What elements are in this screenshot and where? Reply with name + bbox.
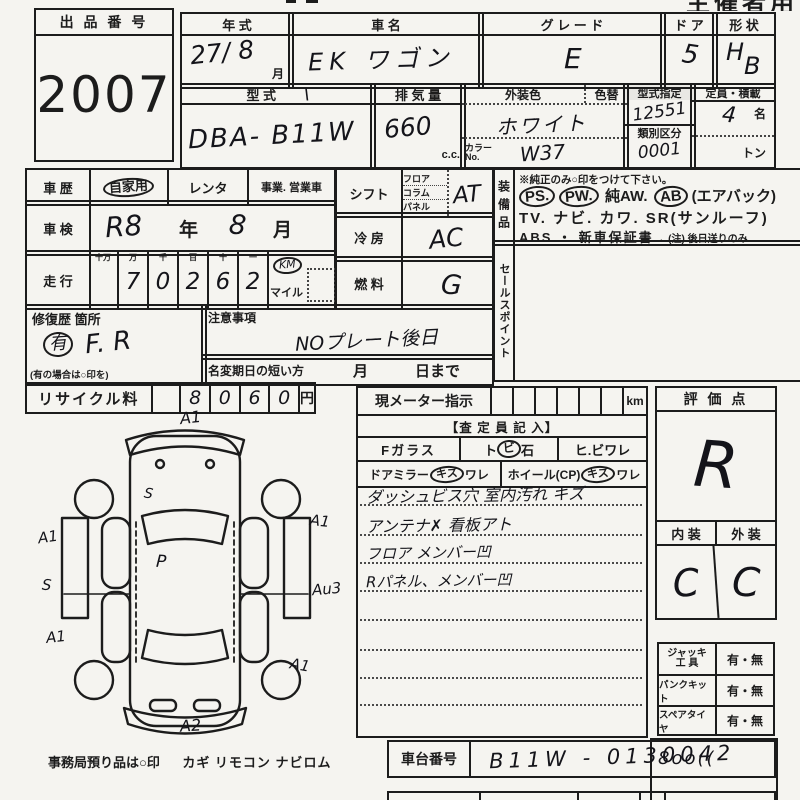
- model-code-label-text: 型 式: [246, 85, 276, 104]
- color-no-row: カラー No. W37: [462, 137, 627, 169]
- capacity-label: 定員・積載: [692, 85, 774, 102]
- color-change-label: 色替: [586, 85, 627, 103]
- inspection-box: 車 検 R8 年 8 月: [25, 200, 336, 256]
- meter-unit: km: [622, 388, 646, 414]
- year-box: 年 式 27/ 8 月: [180, 12, 294, 89]
- evaluation-score: R: [653, 408, 778, 524]
- repair-history-label: 修復歴 箇所: [32, 309, 101, 328]
- type-designation-box: 型式指定 12551 類別区分 0001: [623, 83, 696, 169]
- meter-label: 現メーター指示: [358, 388, 490, 414]
- assessor-note-1: ダッシュビス穴 室内汚れ キズ: [366, 480, 585, 508]
- mileage-extra-cell: [307, 268, 336, 302]
- fuel-label: 燃 料: [337, 258, 403, 308]
- equipment-label: 装備品: [496, 180, 513, 234]
- inspection-label: 車 検: [27, 202, 91, 254]
- shape-box: 形 状 H B: [712, 12, 776, 89]
- jack-label-line2: 工 具: [676, 659, 699, 669]
- assessor-title: 【査 定 員 記 入】: [358, 416, 646, 438]
- meter-cell: [578, 388, 600, 414]
- equipment-label-cell: 装備品: [495, 170, 515, 244]
- meter-cell: [490, 388, 512, 414]
- aircon-box: 冷 房 AC: [335, 212, 494, 262]
- office-note-items: カギ リモコン ナビロム: [182, 755, 331, 770]
- note-line: [360, 677, 642, 679]
- clipped-table-divider: [479, 793, 481, 800]
- digit-header: 百: [179, 252, 207, 263]
- accessory-row-jack: ジャッキ 工 具 有・無: [659, 644, 773, 676]
- puncture-kit-有無: 有・無: [717, 676, 773, 705]
- exterior-color-box: 外装色 色替 ホワイト カラー No. W37: [460, 83, 629, 169]
- equipment-aw: 純AW.: [605, 188, 648, 205]
- repair-history-value: F. R: [84, 326, 133, 361]
- mileage-unit-mile: マイル: [270, 284, 303, 300]
- mileage-digit-cells: 十万 万7 千0 百2 十6 一2: [89, 252, 269, 308]
- interior-grade: C: [654, 544, 719, 622]
- inspection-year-suffix: 年: [179, 215, 198, 242]
- clipped-table-divider: [639, 793, 641, 800]
- color-no-value: W37: [519, 139, 566, 166]
- stone-chip-circled: ビ: [496, 439, 521, 458]
- clipped-table-divider: [577, 793, 579, 800]
- model-code-label: 型 式 \: [182, 85, 374, 105]
- history-label: 車 歴: [27, 170, 91, 204]
- name-change-label: 名変期日の短い方: [208, 362, 304, 379]
- exterior-label: 外 装: [717, 522, 775, 544]
- office-note: 事務局預り品は○印 カギ リモコン ナビロム: [48, 752, 332, 772]
- note-line: [360, 649, 642, 651]
- mileage-digit: 0: [149, 263, 177, 301]
- car-outline-drawing: [52, 412, 348, 750]
- mileage-digit: 6: [209, 263, 237, 301]
- displacement-label: 排 気 量: [372, 85, 464, 105]
- diagram-mark-roof: P: [155, 552, 166, 573]
- fuel-box: 燃 料 G: [335, 256, 494, 310]
- car-name-box: 車 名 EK ワゴン: [288, 12, 484, 89]
- auction-number-value: 2007: [36, 36, 172, 154]
- grade-label: グ レ ー ド: [480, 14, 664, 36]
- interior-exterior-header: 内 装 外 装: [657, 520, 775, 546]
- auction-number-label: 出 品 番 号: [36, 10, 172, 36]
- diagram-mark-front: A1: [179, 407, 202, 428]
- exterior-color-header: 外装色 色替: [462, 85, 627, 105]
- door-label: ド ア: [662, 14, 716, 36]
- shape-label: 形 状: [714, 14, 774, 36]
- history-option-private: 自家用: [91, 170, 169, 204]
- corner-header: 主催者用: [686, 0, 800, 11]
- jack-有無: 有・無: [717, 644, 773, 674]
- interior-exterior-grades: C C: [657, 546, 775, 620]
- chassis-number-value: B11W - 0130042: [489, 741, 736, 774]
- digit-header: 十万: [89, 252, 117, 263]
- color-no-label2: No.: [465, 152, 480, 162]
- auction-number-box: 出 品 番 号 2007: [34, 8, 174, 162]
- capacity-divider: [692, 135, 774, 137]
- year-label: 年 式: [182, 14, 292, 36]
- repair-history-note: (有の場合は○印を): [30, 367, 109, 381]
- mileage-cell: 十万: [89, 252, 119, 308]
- diagram-mark-left-mid: S: [41, 576, 52, 595]
- model-code-box: 型 式 \ DBA- B11W: [180, 83, 376, 169]
- shift-options: フロア コラム パネル: [403, 172, 447, 213]
- puncture-kit-label: パンクキット: [659, 676, 717, 705]
- aircon-label: 冷 房: [337, 214, 403, 260]
- repair-history-mark: 有: [42, 331, 74, 358]
- stone-chip-cell: ト ビ 石: [461, 438, 559, 460]
- clipped-text-fragment: [306, 0, 318, 3]
- spare-tire-label: スペアタイヤ: [659, 707, 717, 734]
- inspection-month-value: 8: [228, 209, 248, 241]
- chassis-number-label: 車台番号: [389, 742, 471, 776]
- jack-tools-label: ジャッキ 工 具: [659, 644, 717, 674]
- auction-sheet: 主催者用 出 品 番 号 2007 年 式 27/ 8 月 車 名 EK ワゴン…: [0, 0, 800, 800]
- mileage-unit-km: KM: [272, 256, 302, 275]
- recycle-digit: 6: [241, 384, 271, 412]
- name-change-day: 日まで: [415, 360, 460, 381]
- interior-label: 内 装: [657, 522, 717, 544]
- meter-cell: [512, 388, 534, 414]
- evaluation-box: 評 価 点 R 内 装 外 装 C C: [655, 386, 777, 620]
- shift-value: AT: [452, 181, 482, 209]
- mileage-cell: 一2: [239, 252, 269, 308]
- shift-label: シフト: [337, 170, 403, 216]
- diagram-mark-right-front: A1: [309, 511, 331, 531]
- caution-value: NOプレート後日: [294, 322, 438, 356]
- accessories-box: ジャッキ 工 具 有・無 パンクキット 有・無 スペアタイヤ 有・無: [657, 642, 775, 736]
- equipment-box: 装備品 ※純正のみ○印をつけて下さい。 PS. PW. 純AW. AB (エアバ…: [493, 168, 800, 246]
- shape-value-b: B: [744, 52, 760, 80]
- model-code-tick: \: [304, 85, 309, 103]
- crack-label: ヒ.ビワレ: [559, 438, 646, 460]
- shift-options-border: [447, 170, 449, 216]
- car-damage-diagram: A1 S A1 S A1 P A1 Au3 A1 A2: [52, 412, 348, 750]
- displacement-unit: c.c.: [442, 149, 460, 161]
- load-unit: トン: [742, 144, 766, 161]
- displacement-value: 660: [383, 111, 433, 144]
- mileage-digit: 2: [179, 263, 207, 301]
- clipped-bottom-table: [387, 791, 776, 800]
- digit-header: 千: [149, 252, 177, 263]
- caution-box: 注意事項 NOプレート後日: [201, 304, 494, 360]
- history-option-business: 事業. 営業車: [249, 170, 334, 204]
- recycle-cell-blank: [153, 384, 182, 412]
- digit-header: 万: [119, 252, 147, 263]
- repair-history-box: 修復歴 箇所 有 F. R (有の場合は○印を): [25, 304, 207, 386]
- history-option-rental: レンタ: [169, 170, 249, 204]
- note-line: [360, 704, 642, 706]
- diagram-mark-rear: A2: [179, 715, 201, 735]
- meter-cell: [556, 388, 578, 414]
- assessor-note-4: Rパネル、メンバー凹: [366, 569, 512, 593]
- mileage-cell: 百2: [179, 252, 209, 308]
- capacity-value: 4: [721, 102, 738, 128]
- fglass-label: Fガラス: [358, 438, 461, 460]
- mileage-cell: 千0: [149, 252, 179, 308]
- sales-point-label-cell: セールスポイント: [495, 242, 515, 380]
- clipped-table-divider: [664, 793, 666, 800]
- accessory-row-puncture-kit: パンクキット 有・無: [659, 676, 773, 707]
- class-division-value: 0001: [624, 136, 695, 165]
- exterior-color-value: ホワイト: [495, 107, 588, 141]
- recycle-fee-box: リサイクル料 8 0 6 0 円: [25, 382, 316, 414]
- recycle-digit: 0: [211, 384, 241, 412]
- diagram-mark-right-rear: A1: [289, 654, 312, 675]
- caution-label: 注意事項: [208, 309, 256, 326]
- assessor-note-2: アンテナ✗ 看板アト: [366, 511, 512, 538]
- mileage-box: 走 行 十万 万7 千0 百2 十6 一2 KM マイル: [25, 250, 336, 310]
- fuel-value: G: [440, 269, 463, 301]
- recycle-unit: 円: [300, 384, 314, 412]
- mileage-cell: 万7: [119, 252, 149, 308]
- chassis-number-box: 車台番号 B11W - 0130042: [387, 740, 776, 778]
- accessory-row-spare-tire: スペアタイヤ 有・無: [659, 707, 773, 734]
- shift-option-floor: フロア: [403, 172, 447, 186]
- shift-box: シフト フロア コラム パネル AT: [335, 168, 494, 218]
- capacity-box: 定員・積載 4 名 トン: [690, 83, 776, 169]
- equipment-line1: PS. PW. 純AW. AB (エアバック): [519, 185, 776, 207]
- year-value: 27/ 8: [189, 35, 256, 71]
- equipment-airbag-suffix: (エアバック): [692, 188, 776, 205]
- grade-value: E: [564, 42, 582, 75]
- shape-value-h: H: [726, 38, 744, 66]
- inspection-month-suffix: 月: [273, 215, 292, 242]
- equipment-line2: TV. ナビ. カワ. SR(サンルーフ): [519, 207, 769, 228]
- capacity-unit: 名: [754, 105, 766, 122]
- year-month-suffix: 月: [272, 65, 284, 82]
- inspection-era-value: R8: [104, 209, 143, 245]
- stone-chip-pre: ト: [484, 440, 497, 459]
- aircon-value: AC: [428, 222, 465, 254]
- assessor-note-3: フロア メンバー凹: [366, 541, 491, 564]
- exterior-color-label: 外装色: [462, 85, 586, 103]
- office-note-label: 事務局預り品は○印: [48, 755, 160, 770]
- car-name-value: EK ワゴン: [307, 37, 455, 77]
- recycle-digit: 0: [270, 384, 300, 412]
- assessor-notes-area: ダッシュビス穴 室内汚れ キズ アンテナ✗ 看板アト フロア メンバー凹 Rパネ…: [358, 480, 646, 734]
- name-change-month: 月: [353, 360, 368, 381]
- spare-tire-有無: 有・無: [717, 707, 773, 734]
- recycle-fee-label: リサイクル料: [27, 384, 153, 412]
- exterior-grade: C: [715, 545, 777, 622]
- sales-point-label: セールスポイント: [496, 263, 512, 359]
- car-name-label: 車 名: [290, 14, 482, 36]
- diagram-mark-left-rear: A1: [45, 627, 67, 647]
- diagram-mark-left-front: A1: [37, 527, 59, 548]
- mileage-digit: 7: [119, 263, 147, 301]
- corner-header-label: 主催者用: [686, 0, 798, 11]
- model-code-value: DBA- B11W: [187, 117, 356, 156]
- grade-box: グ レ ー ド E: [478, 12, 666, 89]
- door-box: ド ア 5: [660, 12, 718, 89]
- stone-chip-post: 石: [521, 440, 534, 459]
- meter-row: 現メーター指示 km: [358, 388, 646, 416]
- history-option-private-label: 自家用: [103, 176, 155, 198]
- meter-assessor-box: 現メーター指示 km 【査 定 員 記 入】 Fガラス ト ビ 石 ヒ.ビワレ …: [356, 386, 648, 738]
- diagram-mark-right-mid: Au3: [311, 579, 342, 599]
- shift-option-column: コラム: [403, 186, 447, 200]
- meter-cell: [600, 388, 622, 414]
- mileage-cell: 十6: [209, 252, 239, 308]
- door-value: 5: [680, 39, 701, 71]
- assessor-glass-row: Fガラス ト ビ 石 ヒ.ビワレ: [358, 438, 646, 462]
- digit-header: 十: [209, 252, 237, 263]
- equipment-ps: PS.: [518, 185, 556, 209]
- mileage-label: 走 行: [27, 252, 91, 308]
- meter-cell: [534, 388, 556, 414]
- mileage-digit: 2: [239, 263, 267, 301]
- equipment-ab: AB: [653, 185, 688, 209]
- note-line: [360, 619, 642, 621]
- equipment-pw: PW.: [559, 185, 600, 209]
- clipped-text-fragment: [286, 0, 296, 3]
- sales-point-box: セールスポイント: [493, 240, 800, 382]
- displacement-box: 排 気 量 660 c.c.: [370, 83, 466, 169]
- digit-header: 一: [239, 252, 267, 263]
